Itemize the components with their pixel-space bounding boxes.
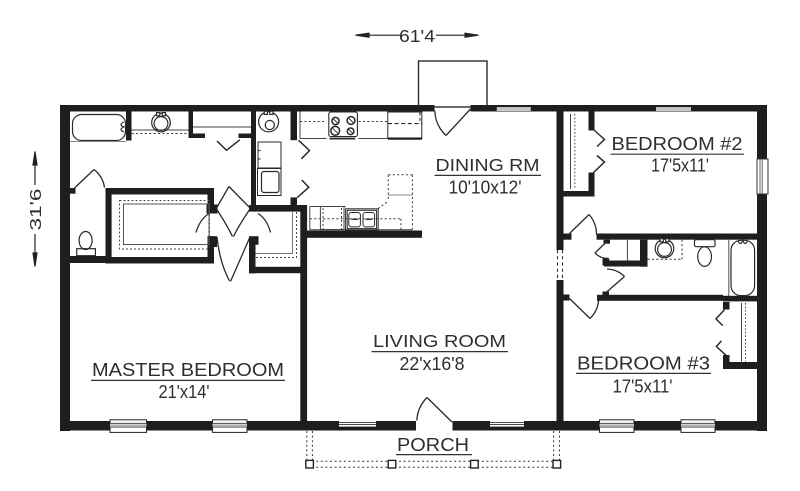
svg-text:MASTER BEDROOM: MASTER BEDROOM xyxy=(92,359,284,380)
svg-text:10'10x12': 10'10x12' xyxy=(449,177,522,198)
svg-text:LIVING ROOM: LIVING ROOM xyxy=(373,331,506,351)
svg-text:31'6: 31'6 xyxy=(28,188,45,230)
svg-text:21'x14': 21'x14' xyxy=(159,381,210,402)
svg-text:BEDROOM #3: BEDROOM #3 xyxy=(577,353,710,374)
svg-text:17'5x11': 17'5x11' xyxy=(651,155,709,176)
svg-text:BEDROOM #2: BEDROOM #2 xyxy=(612,134,743,154)
svg-text:DINING RM: DINING RM xyxy=(436,155,540,175)
svg-text:61'4: 61'4 xyxy=(399,26,435,46)
svg-text:PORCH: PORCH xyxy=(397,434,469,455)
svg-text:17'5x11': 17'5x11' xyxy=(613,375,673,396)
svg-text:22'x16'8: 22'x16'8 xyxy=(400,353,465,374)
